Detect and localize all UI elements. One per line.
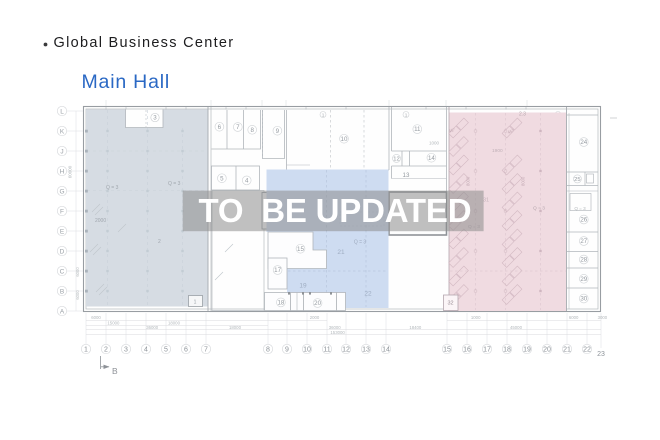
svg-text:15: 15: [443, 347, 451, 354]
svg-text:21: 21: [563, 347, 571, 354]
svg-text:1000: 1000: [471, 315, 481, 320]
svg-text:6000: 6000: [75, 267, 80, 277]
svg-text:36000: 36000: [146, 325, 159, 330]
svg-text:4: 4: [144, 347, 148, 354]
svg-text:22: 22: [583, 347, 591, 354]
svg-text:31: 31: [483, 198, 489, 204]
svg-text:20: 20: [543, 347, 551, 354]
svg-text:8: 8: [250, 127, 254, 134]
svg-text:6: 6: [184, 347, 188, 354]
svg-text:1: 1: [84, 347, 88, 354]
svg-text:22: 22: [364, 291, 372, 298]
svg-text:Q = 3: Q = 3: [574, 206, 586, 211]
svg-text:45000: 45000: [510, 325, 523, 330]
svg-text:A: A: [60, 309, 65, 316]
svg-text:19: 19: [299, 283, 307, 290]
svg-text:8: 8: [266, 347, 270, 354]
svg-text:15: 15: [297, 246, 304, 253]
svg-text:2.3: 2.3: [519, 112, 526, 118]
svg-text:K: K: [60, 129, 65, 136]
svg-text:3: 3: [153, 115, 157, 122]
svg-text:Q = 3: Q = 3: [106, 185, 119, 191]
svg-text:1900: 1900: [492, 148, 503, 154]
svg-text:Q = 3: Q = 3: [354, 240, 367, 246]
svg-text:18400: 18400: [409, 325, 422, 330]
svg-text:8000: 8000: [466, 176, 471, 186]
svg-text:32: 32: [447, 301, 453, 307]
svg-text:4: 4: [245, 178, 249, 185]
svg-text:10: 10: [341, 136, 348, 143]
svg-text:G: G: [59, 189, 64, 196]
svg-text:21: 21: [337, 249, 345, 256]
svg-text:Q = 3: Q = 3: [168, 181, 181, 187]
svg-text:12: 12: [342, 347, 350, 354]
svg-text:11: 11: [414, 126, 421, 133]
svg-text:30: 30: [580, 296, 587, 303]
svg-text:14: 14: [428, 155, 435, 162]
svg-text:2: 2: [104, 347, 108, 354]
svg-text:13: 13: [362, 347, 370, 354]
svg-text:7: 7: [236, 124, 240, 131]
svg-text:36000: 36000: [329, 325, 342, 330]
svg-text:15000: 15000: [107, 320, 120, 325]
svg-text:3000: 3000: [598, 315, 608, 320]
svg-text:9: 9: [285, 347, 289, 354]
svg-text:B: B: [60, 289, 64, 296]
svg-text:153000: 153000: [330, 330, 345, 335]
svg-text:23: 23: [597, 351, 605, 358]
svg-text:17: 17: [483, 347, 491, 354]
svg-text:J: J: [60, 149, 63, 156]
svg-text:1: 1: [194, 300, 197, 306]
svg-text:28: 28: [580, 257, 587, 264]
svg-text:Q = 3: Q = 3: [533, 206, 545, 212]
svg-text:29: 29: [580, 276, 587, 283]
svg-text:H: H: [60, 169, 65, 176]
svg-text:1000: 1000: [429, 141, 440, 146]
svg-text:6: 6: [218, 124, 222, 131]
svg-text:27: 27: [580, 238, 587, 245]
svg-text:24: 24: [580, 139, 587, 146]
svg-text:5: 5: [220, 175, 224, 182]
svg-text:8000: 8000: [521, 176, 526, 186]
svg-text:6000: 6000: [75, 290, 80, 300]
svg-text:14: 14: [382, 347, 390, 354]
svg-text:18: 18: [277, 300, 284, 307]
svg-text:17: 17: [274, 267, 281, 274]
svg-text:20: 20: [314, 300, 321, 307]
svg-text:12: 12: [393, 157, 399, 163]
svg-text:TO BE UPDATED: TO BE UPDATED: [199, 192, 472, 229]
svg-text:11: 11: [323, 347, 330, 354]
svg-text:18000: 18000: [168, 320, 181, 325]
svg-text:7: 7: [204, 347, 208, 354]
svg-text:60000: 60000: [68, 165, 73, 178]
svg-text:B: B: [112, 366, 118, 376]
svg-text:25: 25: [574, 177, 580, 183]
svg-text:2000: 2000: [310, 315, 320, 320]
svg-text:F: F: [60, 209, 64, 216]
svg-text:2: 2: [158, 239, 161, 245]
svg-text:13: 13: [403, 172, 410, 179]
svg-text:10: 10: [303, 347, 311, 354]
svg-text:18000: 18000: [229, 325, 242, 330]
svg-text:C: C: [60, 269, 65, 276]
svg-text:L: L: [60, 109, 64, 116]
svg-text:6000: 6000: [569, 315, 579, 320]
svg-text:9: 9: [276, 128, 280, 135]
svg-text:26: 26: [580, 217, 587, 224]
svg-text:6000: 6000: [91, 315, 101, 320]
svg-text:16: 16: [463, 347, 471, 354]
svg-text:D: D: [60, 249, 65, 256]
svg-text:2000: 2000: [95, 218, 106, 224]
svg-text:5: 5: [164, 347, 168, 354]
svg-text:3: 3: [124, 347, 128, 354]
svg-text:E: E: [60, 229, 65, 236]
svg-text:19: 19: [523, 347, 531, 354]
svg-text:18: 18: [503, 347, 511, 354]
